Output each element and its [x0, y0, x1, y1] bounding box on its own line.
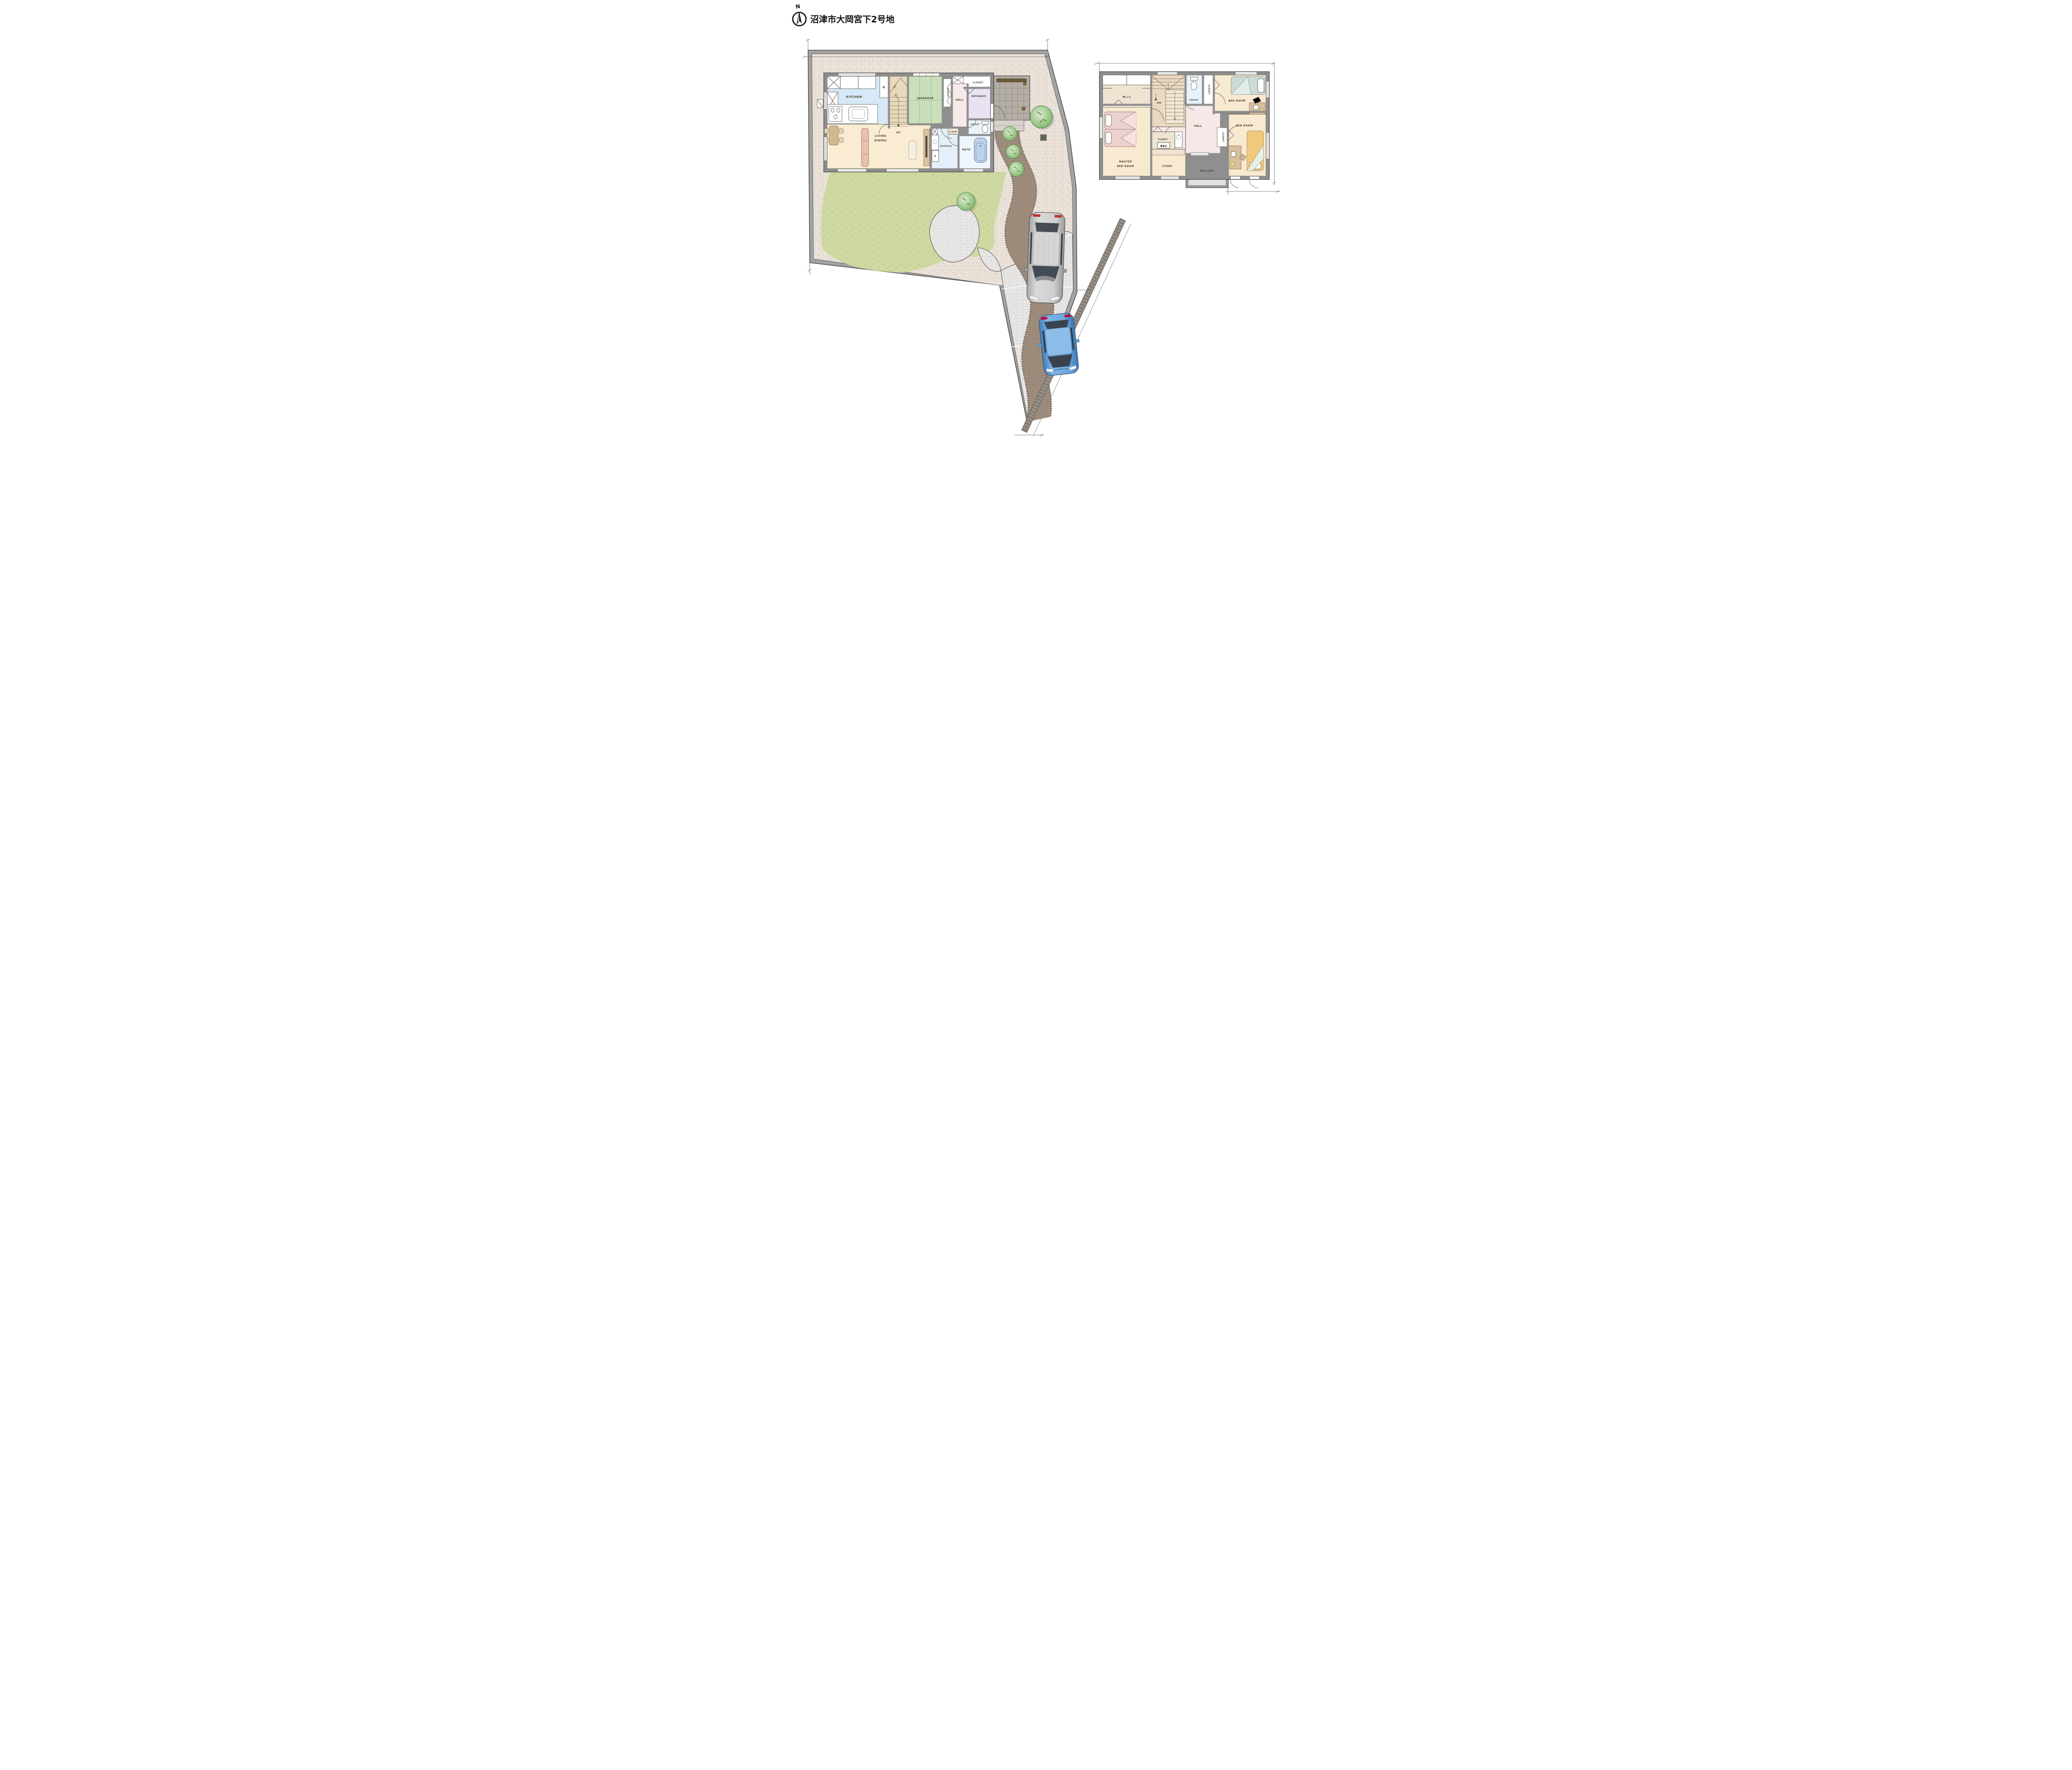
stove-icon [829, 106, 842, 121]
tree-small-3 [1009, 162, 1024, 177]
sink-icon [849, 107, 868, 121]
label-study: STUDY [1162, 165, 1172, 168]
label-closet-2f-top: CLOSET [1208, 85, 1210, 94]
label-dining: DINING [874, 139, 887, 142]
floor1-plan: KITCHEN R UP JAPANESE CLOSET CLOSET HALL… [817, 73, 1005, 172]
label-hall-2f: HALL [1194, 125, 1202, 128]
master-beds [1104, 112, 1136, 147]
north-label: N [795, 3, 801, 10]
label-master-1: MASTER [1119, 160, 1132, 163]
low-table [909, 141, 916, 160]
label-closet-2f-mid: CLOSET [1158, 138, 1168, 141]
room-entrance [968, 88, 990, 119]
label-dn: DN [1157, 102, 1161, 104]
tree-small-2 [1006, 145, 1020, 159]
car-gray [1023, 212, 1069, 303]
label-up: UP [896, 131, 900, 134]
label-bedroom-top: BED ROOM [1228, 99, 1245, 102]
toilet-1f-fixture [982, 121, 988, 133]
label-toilet-1f: TOILET [971, 123, 980, 126]
label-closet-top: CLOSET [973, 82, 983, 84]
sofa [862, 128, 869, 167]
label-closet-japanese: CLOSET [946, 88, 949, 98]
tree-small-1 [1003, 126, 1017, 140]
label-closet-mid: CLOSET [949, 131, 958, 133]
planter-box [1041, 135, 1046, 140]
label-kitchen: KITCHEN [846, 95, 862, 99]
label-bedroom-bottom: BED ROOM [1236, 124, 1253, 127]
label-wic: W.I.C [1123, 96, 1131, 99]
label-japanese: JAPANESE [917, 97, 934, 100]
porch-bench [997, 79, 1026, 82]
label-toilet-2f: TOILET [1189, 99, 1198, 102]
tv-icon [925, 136, 927, 157]
label-entrance: ENTRANCE [971, 95, 986, 98]
floor2-plan: W.I.C DN TOILET CLOSET BED ROOM MASTER B… [1099, 72, 1269, 188]
dining-table [829, 126, 838, 145]
floorplan-drawing: KITCHEN R UP JAPANESE CLOSET CLOSET HALL… [776, 0, 1296, 442]
north-compass-icon: N [793, 3, 806, 26]
study-counter [1151, 149, 1184, 155]
room-hall-1f [952, 84, 968, 128]
floorplan-page: KITCHEN R UP JAPANESE CLOSET CLOSET HALL… [776, 0, 1296, 442]
label-bath: BATH [962, 148, 971, 151]
label-battery: 蓄電池 [1160, 145, 1167, 148]
label-closet-right: CLOSET [1222, 132, 1224, 142]
page-title: 沼津市大岡宮下2号地 [810, 15, 895, 24]
label-washer: S [934, 155, 937, 158]
label-hall-1f: HALL [956, 99, 964, 102]
label-living: LIVING [875, 134, 886, 138]
label-master-2: BED ROOM [1117, 165, 1134, 168]
label-fridge: R [883, 86, 885, 89]
label-balcony: BALCONY [1200, 170, 1214, 172]
label-sanitary: Sanitary [940, 145, 952, 147]
bath-fixtures [974, 138, 987, 162]
